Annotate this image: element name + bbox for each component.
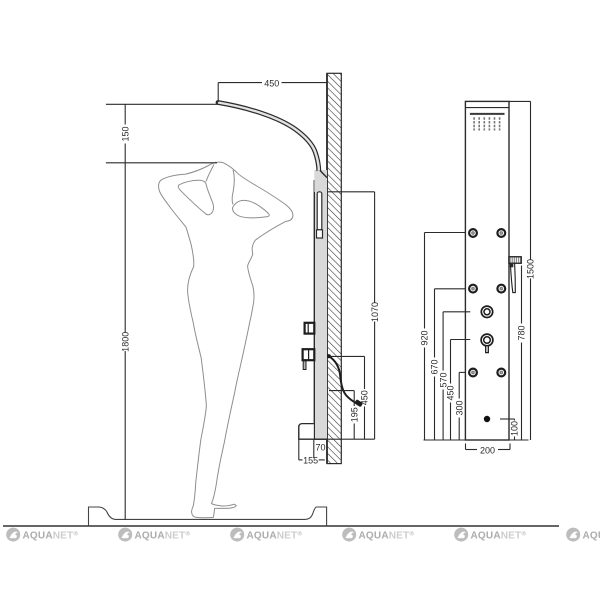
svg-text:AQUANET®: AQUANET®: [135, 529, 191, 541]
svg-text:450: 450: [446, 385, 456, 400]
svg-text:AQUANET®: AQUANET®: [247, 529, 303, 541]
svg-text:200: 200: [480, 445, 495, 455]
svg-text:300: 300: [454, 400, 464, 415]
svg-text:100: 100: [510, 421, 520, 436]
svg-text:155: 155: [303, 456, 318, 466]
svg-text:450: 450: [264, 79, 279, 89]
svg-text:70: 70: [315, 443, 325, 453]
svg-text:670: 670: [430, 359, 440, 374]
svg-text:1800: 1800: [120, 332, 130, 352]
svg-text:1070: 1070: [370, 302, 380, 322]
svg-text:570: 570: [438, 372, 448, 387]
svg-text:AQUANET®: AQUANET®: [359, 529, 415, 541]
svg-text:1500: 1500: [526, 259, 536, 279]
svg-text:AQUANET®: AQUANET®: [471, 529, 527, 541]
svg-text:150: 150: [120, 126, 130, 141]
svg-text:920: 920: [420, 330, 430, 345]
svg-text:450: 450: [360, 390, 370, 405]
svg-text:195: 195: [349, 407, 359, 422]
svg-text:780: 780: [517, 325, 527, 340]
svg-text:AQUANET®: AQUANET®: [583, 529, 600, 541]
svg-text:AQUANET®: AQUANET®: [23, 529, 79, 541]
